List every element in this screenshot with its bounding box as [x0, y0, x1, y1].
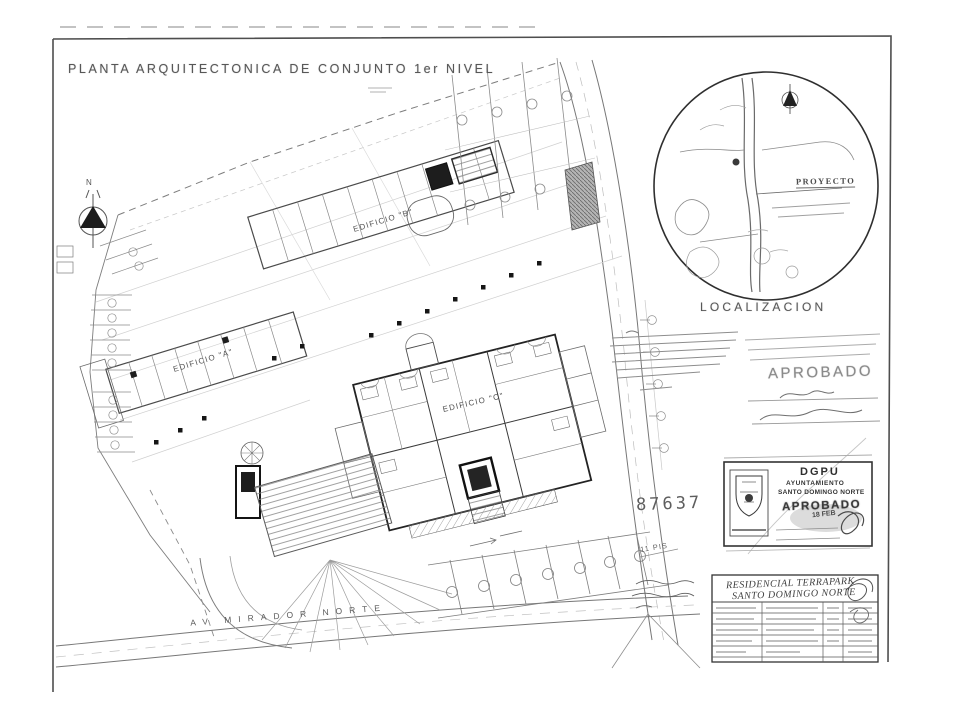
parking-bottom [428, 531, 668, 618]
handwritten-note [612, 549, 700, 668]
localizacion-map [654, 72, 878, 300]
dgpu-stamp-box [724, 455, 872, 551]
stamp-text-block [610, 331, 738, 390]
parking-right-street [640, 300, 668, 470]
plan-linework [0, 0, 960, 720]
street-bottom [56, 596, 700, 667]
building-b [248, 141, 519, 285]
title-block [712, 575, 878, 662]
scanned-site-plan-sheet: PLANTA ARQUITECTONICA DE CONJUNTO 1er NI… [0, 0, 960, 720]
ramp-and-core [200, 442, 452, 652]
title-scale-mark [368, 88, 392, 92]
parking-left [57, 230, 158, 452]
north-arrow [79, 190, 107, 248]
parking-top-right [445, 58, 600, 230]
